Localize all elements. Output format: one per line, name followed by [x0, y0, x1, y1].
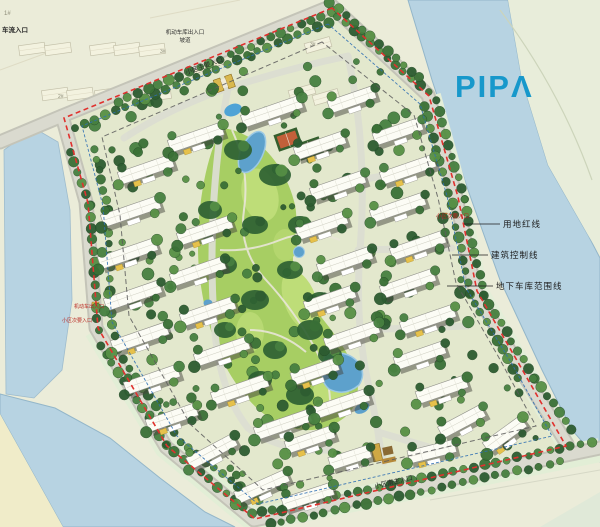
label-garage-extent-line: 地下车库范围线: [496, 281, 563, 291]
parcel-tag: 1#: [4, 11, 11, 17]
label-secondary-entry-left: 小区次要入口: [62, 317, 92, 324]
pipa-logo: PIPΛ: [455, 69, 534, 104]
parcel-tag: 3#: [310, 42, 316, 48]
label-traffic-entry: 车流入口: [2, 25, 28, 34]
label-building-control-line: 建筑控制线: [491, 250, 539, 260]
site-plan-map: 用地红线 建筑控制线 地下车库范围线 车流入口 机动车库出入口 坡道 小区主要入…: [0, 0, 600, 527]
label-vehicle-entry-left: 机动车出入口: [74, 303, 104, 310]
parcel-tag: 3#: [160, 49, 166, 55]
label-site-red-line: 用地红线: [503, 219, 541, 229]
label-garage-ramp-2: 坡道: [179, 36, 191, 44]
label-secondary-entry-right: 小区次要入口: [436, 212, 469, 220]
label-garage-ramp-1: 机动车库出入口: [166, 28, 205, 36]
parcel-tag: 2#: [58, 94, 64, 100]
stream-west: [4, 128, 72, 398]
site-plan-stage: 用地红线 建筑控制线 地下车库范围线 车流入口 机动车库出入口 坡道 小区主要入…: [0, 0, 600, 527]
